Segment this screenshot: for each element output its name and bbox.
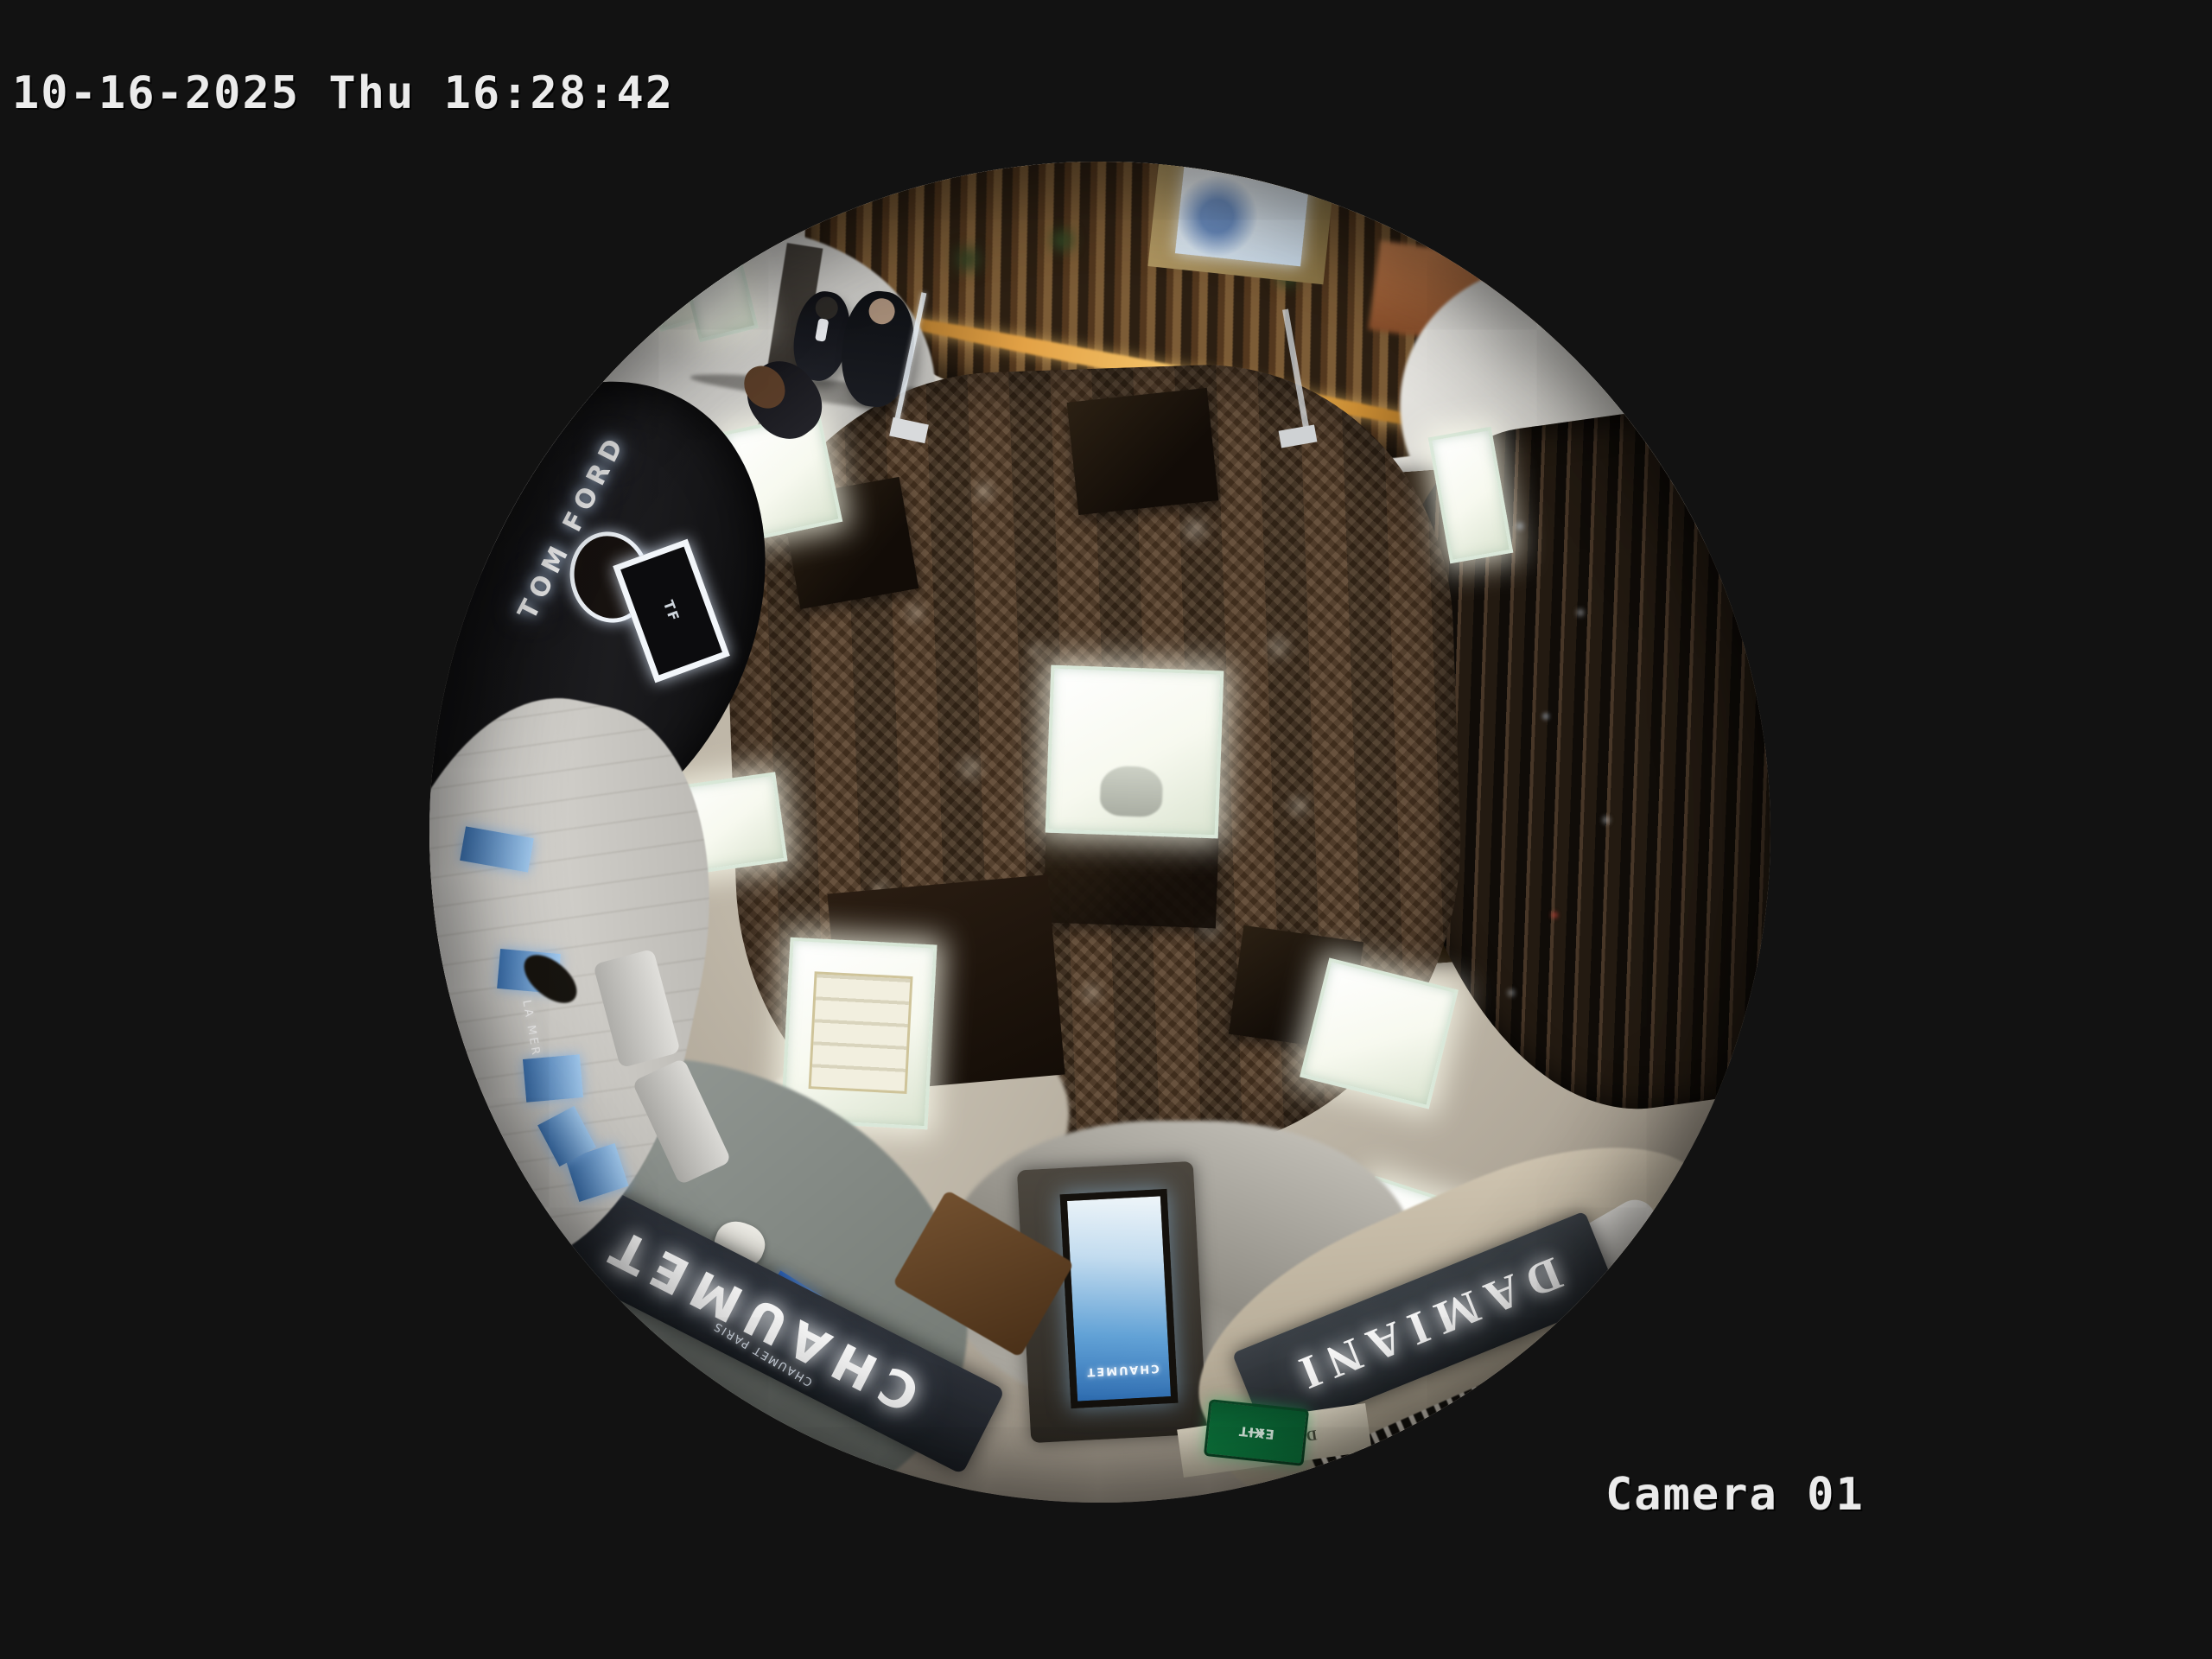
display-window-ad — [1175, 162, 1310, 267]
osd-camera-label: Camera 01 — [1605, 1469, 1865, 1521]
digital-kiosk-screen: CHAUMET — [1060, 1189, 1179, 1408]
cctv-frame: 10-16-2025 Thu 16:28:42 — [0, 0, 2212, 1659]
kiosk-brand-text: CHAUMET — [1085, 1362, 1160, 1378]
person-head — [868, 297, 896, 326]
white-shirt — [815, 318, 829, 342]
ceiling-light-reflections — [429, 162, 433, 165]
exit-sign-label: EXIT — [1237, 1423, 1274, 1442]
central-glass-vitrine — [1046, 665, 1224, 839]
person-head — [814, 295, 840, 321]
fisheye-view: CHAUMET CHAUMET CHAUMET PARIS DAMIANI DA… — [429, 162, 1770, 1503]
display-bust — [1099, 766, 1163, 817]
blue-display-panel — [523, 1054, 583, 1103]
osd-timestamp: 10-16-2025 Thu 16:28:42 — [12, 67, 674, 119]
tf-monogram-text: TF — [660, 598, 683, 625]
jewellery-tray — [809, 971, 913, 1094]
display-pedestal — [1067, 388, 1219, 515]
exit-sign: ← EXIT — [1204, 1399, 1309, 1466]
